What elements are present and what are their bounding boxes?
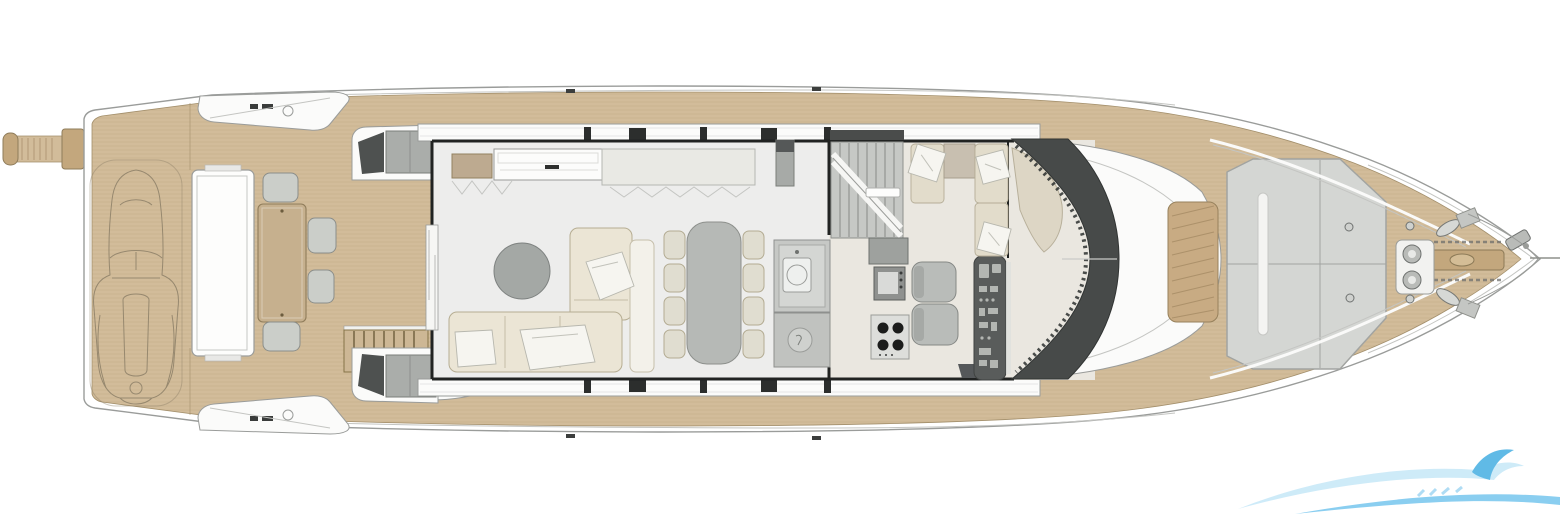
salon-pillar [776,140,794,186]
galley-sink-unit [774,240,830,312]
dinette-corner-table [944,144,975,178]
sofa-back-panel [630,240,654,372]
deck-plan-drawing [0,0,1560,528]
foredeck-sunpad [1227,159,1386,369]
salon-counter [602,149,755,185]
stairs-to-lower-deck [831,142,903,238]
galley-appliance-unit [774,313,830,367]
cockpit-bench [192,165,254,361]
salon-cabinet [452,154,492,178]
faucet [795,250,799,254]
helm-console [974,256,1011,380]
throw-blanket [520,325,595,370]
salon-window-band-bottom [418,379,1040,396]
passerelle-base [62,129,84,169]
cooktop [871,315,909,359]
passerelle-end-cap [3,133,18,165]
dining-table [687,222,741,364]
salon-window-band-top [418,124,1040,141]
galley-cabinet [869,238,908,264]
salon-sideboard [494,149,602,180]
sunpad-backrest [1168,202,1218,322]
deck-fitting [1406,295,1414,303]
cockpit-table [258,204,306,322]
oven [874,267,905,300]
yacht-deck-plan-canvas [0,0,1560,528]
deck-fitting [1406,222,1414,230]
deck-hatch [1450,254,1474,266]
deck-fitting [1346,294,1354,302]
salon-sliding-door [426,225,438,330]
helm-seat-1 [912,262,956,302]
helm-seat-2 [912,304,958,345]
sofa-pillow [455,330,496,367]
stair-landing [866,188,900,197]
deck-fitting [1345,223,1353,231]
windlass [1396,240,1434,294]
coffee-table [494,243,550,299]
tv-mark [545,165,559,169]
sunpad-divider [1258,193,1268,335]
